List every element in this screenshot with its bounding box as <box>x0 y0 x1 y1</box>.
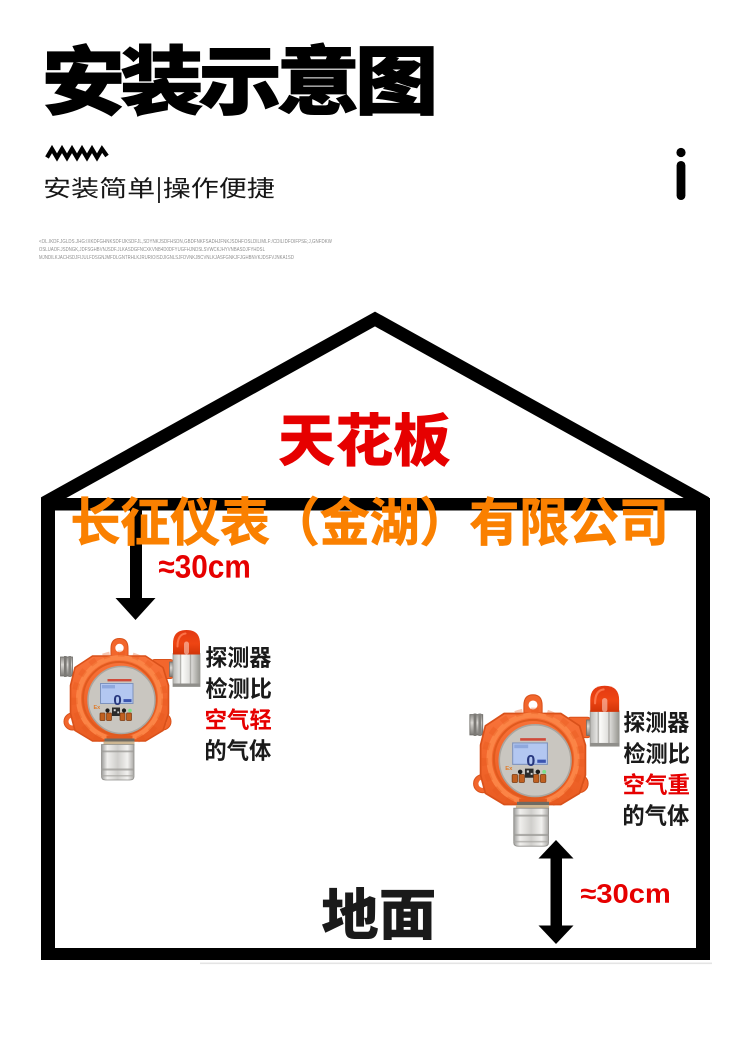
svg-text:MJNDILKJACHSDJFIJULFDSGNJMFDLG: MJNDILKJACHSDJFIJULFDSGNJMFDLGNTRHLKJRUR… <box>39 255 294 261</box>
svg-text:<OL.IKDF.JGLDS.JHG:IXKDFGHNKSD: <OL.IKDF.JGLDS.JHG:IXKDFGHNKSDFIJKSDFJL,… <box>39 239 332 245</box>
svg-text:OSLUAOF.JSDNGK,JDFSGHBVNJSDF.J: OSLUAOF.JSDNGK,JDFSGHBVNJSDF.JLKASDGFNCX… <box>39 247 265 253</box>
